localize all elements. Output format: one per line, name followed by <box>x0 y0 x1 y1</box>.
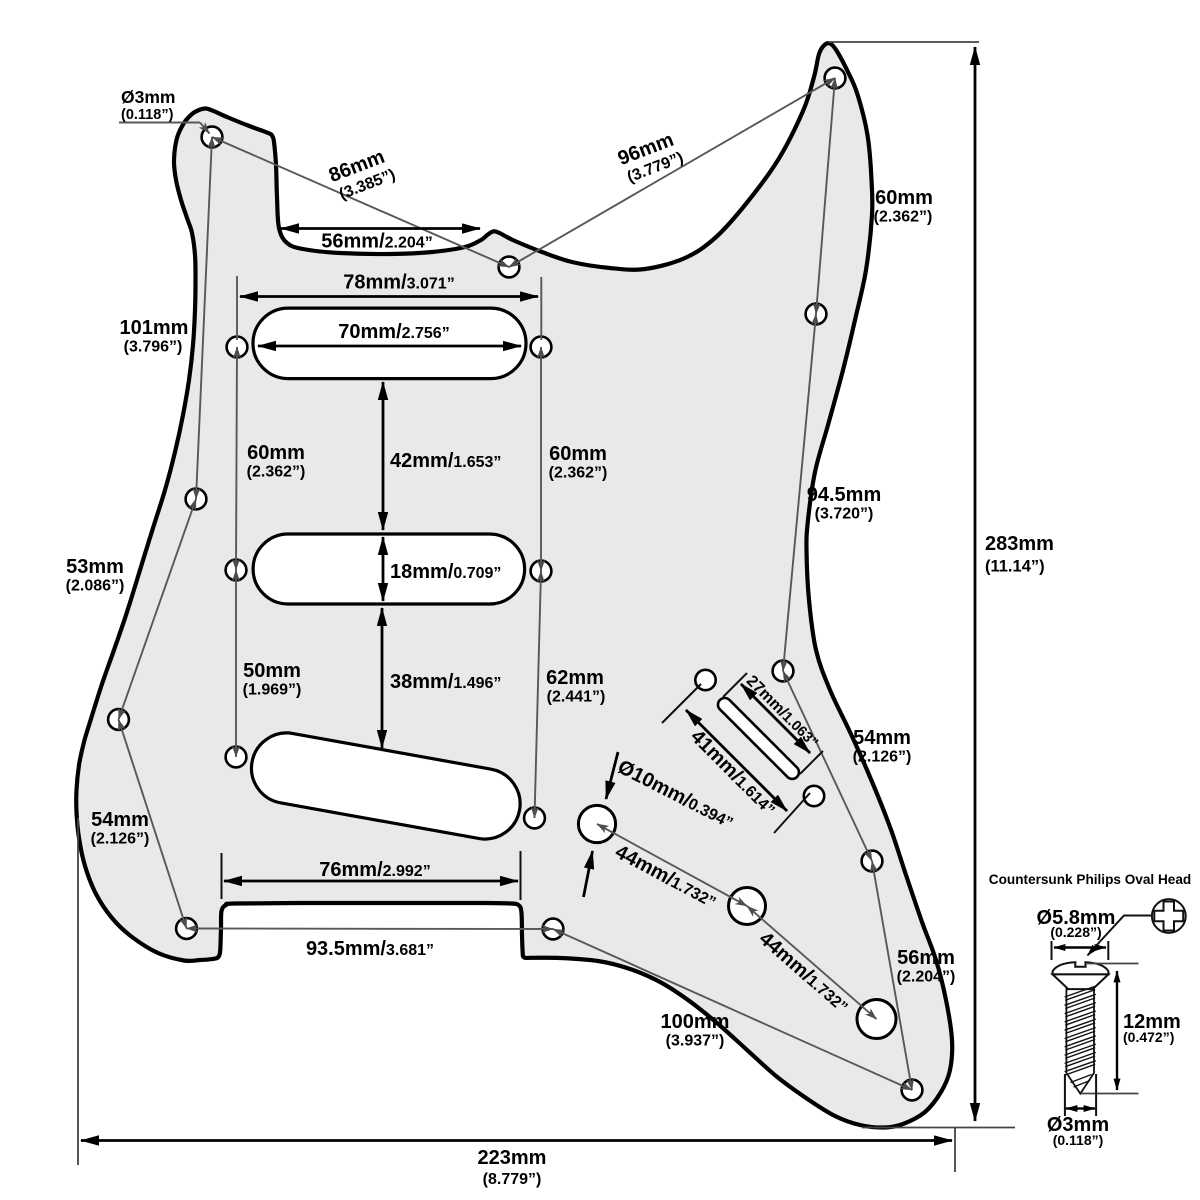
svg-text:(3.720”): (3.720”) <box>815 506 874 523</box>
svg-text:(2.362”): (2.362”) <box>247 464 306 481</box>
svg-text:38mm/1.496”: 38mm/1.496” <box>390 671 501 693</box>
svg-text:Ø3mm: Ø3mm <box>121 87 175 107</box>
svg-text:(2.126”): (2.126”) <box>853 749 912 766</box>
svg-text:(2.204”): (2.204”) <box>897 969 956 986</box>
svg-text:(2.362”): (2.362”) <box>549 465 608 482</box>
svg-text:(3.937”): (3.937”) <box>666 1033 725 1050</box>
svg-text:76mm/2.992”: 76mm/2.992” <box>319 859 430 881</box>
svg-text:(2.441”): (2.441”) <box>547 689 606 706</box>
svg-text:(0.118”): (0.118”) <box>121 107 174 123</box>
svg-text:60mm: 60mm <box>549 443 607 465</box>
svg-text:54mm: 54mm <box>853 727 911 749</box>
svg-text:(11.14”): (11.14”) <box>985 558 1045 576</box>
svg-text:101mm: 101mm <box>120 317 189 339</box>
svg-text:Countersunk Philips Oval Head: Countersunk Philips Oval Head <box>989 872 1191 887</box>
svg-text:60mm: 60mm <box>247 442 305 464</box>
svg-text:(8.779”): (8.779”) <box>483 1171 542 1188</box>
svg-text:(1.969”): (1.969”) <box>243 682 302 699</box>
svg-text:70mm/2.756”: 70mm/2.756” <box>338 321 449 343</box>
svg-text:56mm: 56mm <box>897 947 955 969</box>
svg-text:60mm: 60mm <box>875 187 933 209</box>
svg-text:(0.118”): (0.118”) <box>1053 1132 1104 1148</box>
svg-text:94.5mm: 94.5mm <box>807 484 882 506</box>
svg-text:(2.362”): (2.362”) <box>874 209 933 226</box>
svg-text:62mm: 62mm <box>546 667 604 689</box>
svg-text:(2.086”): (2.086”) <box>66 578 125 595</box>
svg-text:(3.796”): (3.796”) <box>124 339 183 356</box>
svg-text:(0.472”): (0.472”) <box>1123 1029 1174 1045</box>
svg-text:42mm/1.653”: 42mm/1.653” <box>390 450 501 472</box>
svg-text:(2.126”): (2.126”) <box>91 831 150 848</box>
svg-text:53mm: 53mm <box>66 556 124 578</box>
svg-text:54mm: 54mm <box>91 809 149 831</box>
svg-text:56mm/2.204”: 56mm/2.204” <box>321 231 432 253</box>
svg-text:18mm/0.709”: 18mm/0.709” <box>390 561 501 583</box>
svg-text:223mm: 223mm <box>478 1147 547 1169</box>
svg-text:100mm: 100mm <box>661 1011 730 1033</box>
svg-text:50mm: 50mm <box>243 660 301 682</box>
svg-text:283mm: 283mm <box>985 533 1054 555</box>
svg-text:(0.228”): (0.228”) <box>1050 924 1101 940</box>
svg-text:93.5mm/3.681”: 93.5mm/3.681” <box>306 938 434 960</box>
svg-text:78mm/3.071”: 78mm/3.071” <box>343 272 454 294</box>
